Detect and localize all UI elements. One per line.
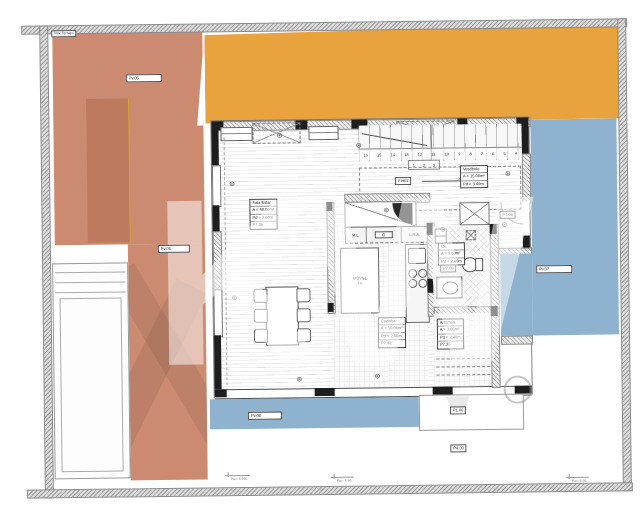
- window-left: [212, 165, 222, 207]
- wall-segment: [211, 129, 218, 165]
- wardrobe: [459, 202, 489, 225]
- vent-symbol-icon: ⊛: [356, 143, 362, 150]
- dryer-label: L.R.A.: [409, 232, 420, 237]
- pool-step-line: [55, 281, 125, 283]
- stair-number: 12: [418, 152, 423, 157]
- pool-step-line: [55, 291, 125, 293]
- wall-segment: [212, 205, 219, 231]
- pool-basin: [60, 298, 124, 473]
- site-wall-bottom: [27, 482, 633, 498]
- tick-icon: [334, 474, 335, 479]
- room-label-hall: Vestíbulo A = 15.00m² Pd = 3.40m: [460, 165, 488, 189]
- room-level: P7.42: [379, 340, 405, 347]
- wall-segment: [215, 389, 227, 397]
- pool-area: [52, 262, 131, 479]
- washing-machine-label: M.L.: [352, 233, 360, 238]
- registered-mark-icon: [503, 375, 531, 403]
- area-label-pv05-lower: Pv.05: [158, 245, 190, 253]
- room-label-wc: I.S. A = 3.60m² Pd = 2.40m: [438, 242, 465, 265]
- window-top-1: [220, 127, 252, 141]
- patio-orange-area: [204, 22, 625, 123]
- chair-icon: [297, 308, 311, 322]
- level-marker-pav-right: Pav: 6.96: [566, 477, 589, 483]
- chair-icon: [297, 328, 311, 342]
- vent-symbol-icon: ⊛: [277, 133, 283, 140]
- chair-icon: [296, 288, 310, 302]
- tv-unit: MÓVEL TV: [340, 247, 380, 313]
- corner-tag: Pav. Terraço: [51, 30, 76, 38]
- wall-segment: [433, 386, 453, 394]
- site-wall-right: [617, 18, 632, 491]
- level-marker-p100: P1.00: [450, 406, 467, 414]
- patio-blue-right: [530, 118, 619, 335]
- site-plan: 16 15 14 13 12 11 10 9 8 7 6 5 4 1 2 3 F…: [21, 12, 631, 497]
- window-left-2: [213, 289, 223, 337]
- building: 16 15 14 13 12 11 10 9 8 7 6 5 4 1 2 3 F…: [211, 118, 531, 398]
- vent-symbol-icon: ⊛: [374, 373, 380, 380]
- terrace-planter: [86, 98, 131, 243]
- floor-plan-sheet: 16 15 14 13 12 11 10 9 8 7 6 5 4 1 2 3 F…: [0, 0, 644, 506]
- tick-icon: [569, 474, 570, 479]
- tv-unit-label: TV: [357, 281, 362, 286]
- hob-burner-icon: [418, 279, 427, 288]
- stair-number: 8: [469, 151, 471, 156]
- dimension-line: [224, 137, 228, 385]
- chair-icon: [254, 309, 268, 323]
- level-marker-p400: P4.00: [450, 444, 467, 452]
- vent-symbol-icon: ⊛: [229, 181, 235, 188]
- patio-blue-notch: [500, 253, 533, 335]
- area-label-pv08: Pv.08: [248, 412, 282, 420]
- wall-segment: [522, 153, 532, 203]
- kitchen-counter: M.L. O L.R.A.: [345, 226, 429, 244]
- room-height: Pd = 3.40m: [461, 181, 487, 188]
- wc-basin-icon: [436, 276, 462, 298]
- room-level: P7.35: [438, 342, 463, 349]
- stair-numbers: 16 15 14 13 12 11 10 9 8 7 6 5 4: [359, 147, 522, 161]
- wall-segment: [328, 303, 334, 312]
- site-wall-left: [39, 25, 54, 498]
- terrace-area-strip: [128, 243, 208, 480]
- level-marker-pav-left: Pav: 6.965: [225, 475, 250, 481]
- hob-burner-icon: [408, 269, 417, 278]
- wall-kitchen-left: [326, 202, 335, 314]
- walkway-blue-bottom: [210, 397, 419, 430]
- dryer: L.R.A.: [402, 227, 428, 242]
- stair-number: 7: [481, 151, 483, 156]
- stair-number: 10: [444, 151, 449, 156]
- wall-segment: [491, 306, 498, 316]
- room-label-sala-estar: Sala Estar A = 48.06m² Pd = 2.60m P7.36: [249, 199, 277, 230]
- room-level: P7.36: [251, 222, 277, 229]
- vent-symbol-icon: ⊛: [440, 227, 446, 234]
- vent-symbol-icon: ⊛: [502, 222, 508, 229]
- pav-value: Pav: 6.96: [337, 479, 352, 483]
- stair-number: 14: [390, 152, 395, 157]
- chair-icon: [254, 329, 268, 343]
- hob-burner-icon: [418, 269, 427, 278]
- wall-segment: [315, 388, 335, 396]
- chair-icon: [253, 289, 267, 303]
- wall-notch-bottom: [501, 335, 533, 344]
- room-height: Pd = 2.40m: [439, 258, 464, 265]
- pav-value: Pav: 6.965: [231, 477, 248, 481]
- window-top-2: [308, 126, 338, 140]
- vent-symbol-icon: ⊛: [383, 207, 389, 214]
- floor-drain-icon: [466, 230, 476, 240]
- tick-icon: [228, 472, 229, 477]
- washing-machine: M.L.: [346, 228, 367, 243]
- area-label-pv07: Pv.07: [536, 265, 572, 273]
- vent-symbol-icon: ⊛: [505, 171, 511, 178]
- stair-number: 16: [363, 152, 368, 157]
- level-marker-pav-mid: Pav: 6.96: [331, 477, 354, 483]
- stair-number: 6: [492, 151, 494, 156]
- stair-number: 4: [515, 151, 517, 156]
- window-glass-line: [309, 132, 337, 133]
- room-label-arrumos: Arrumos A = 3.05m² Pd = 2.40m P7.35: [437, 318, 464, 349]
- stair-number: 13: [404, 152, 409, 157]
- room-label-cozinha: Cozinha A = 10.06m² Pd = 2.56m P7.42: [378, 317, 406, 348]
- oven-label: O: [375, 231, 392, 238]
- area-label-pv05-upper: Pv.05: [126, 74, 162, 82]
- wall-segment: [490, 224, 497, 234]
- hob-burner-icon: [408, 279, 417, 288]
- level-marker-p706: P7.06: [499, 211, 516, 219]
- window-glass-line: [222, 133, 252, 134]
- wall-segment: [214, 335, 222, 389]
- stair-number: 9: [458, 151, 460, 156]
- wall-segment: [326, 202, 332, 211]
- pool-step-line: [55, 271, 125, 273]
- stair-number: 5: [503, 151, 505, 156]
- vent-symbol-icon: ⊛: [231, 295, 237, 302]
- wall-segment: [213, 231, 223, 291]
- oven: O: [367, 227, 402, 242]
- stair-number: 11: [431, 152, 435, 157]
- kitchen-sink: [408, 248, 426, 264]
- pav-value: Pav: 6.96: [572, 479, 587, 483]
- wall-segment: [521, 118, 528, 154]
- dining-table: [265, 286, 299, 345]
- vent-symbol-icon: ⊛: [296, 376, 302, 383]
- wc-toilet-tank: [475, 258, 483, 271]
- basin-bowl: [442, 281, 458, 294]
- level-marker-fh02: F.H02: [395, 177, 412, 185]
- stair-number: 15: [377, 152, 382, 157]
